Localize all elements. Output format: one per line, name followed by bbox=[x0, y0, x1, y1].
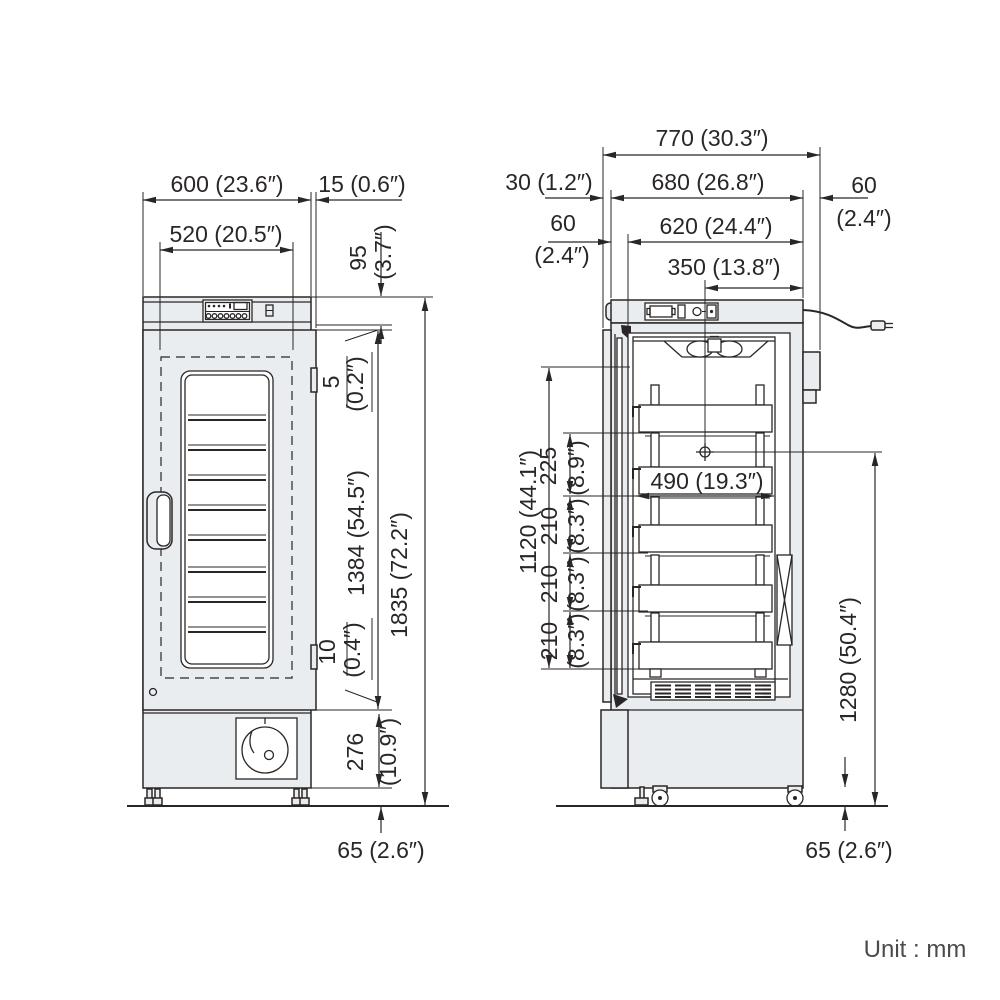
dim-label-pitch2-mm: 210 bbox=[536, 507, 562, 545]
dim-label-caster-height: 65 (2.6″) bbox=[805, 837, 892, 863]
dim-label-wall-mm: 60 bbox=[550, 210, 576, 236]
refrigerator-dimension-drawing: 600 (23.6″) 15 (0.6″) 520 (20.5″) 95 (3.… bbox=[0, 0, 1000, 1000]
rear-top-step bbox=[803, 390, 816, 403]
dim-label-bottom-gap-in: (0.4″) bbox=[339, 622, 365, 677]
glass-window bbox=[181, 371, 273, 668]
unit-note: Unit : mm bbox=[864, 936, 967, 963]
lower-front-panel bbox=[601, 710, 628, 788]
dim-label-top-gap-in: (0.2″) bbox=[342, 356, 368, 411]
dim-label-rear-clearance: 30 (1.2″) bbox=[505, 169, 592, 195]
rear-duct bbox=[777, 555, 792, 645]
dim-label-top-panel-in: (3.7″) bbox=[370, 224, 396, 279]
vent-grille bbox=[651, 682, 775, 700]
dim-label-pitch4-mm: 210 bbox=[536, 622, 562, 660]
chart-recorder bbox=[236, 718, 297, 779]
dim-label-pitch1-mm: 225 bbox=[535, 447, 561, 485]
dim-label-rear-offset-in: (2.4″) bbox=[836, 205, 891, 231]
hinge-top bbox=[311, 368, 317, 392]
indicator-led bbox=[218, 305, 221, 308]
dim-label-foot-height: 65 (2.6″) bbox=[337, 837, 424, 863]
dim-label-base-height-mm: 276 bbox=[342, 733, 368, 771]
rear-top-box bbox=[803, 352, 820, 390]
side-top-control-unit bbox=[645, 303, 718, 320]
indicator-led bbox=[213, 305, 216, 308]
casters bbox=[635, 786, 803, 806]
dim-label-door-overhang: 15 (0.6″) bbox=[318, 171, 405, 197]
front-view: 600 (23.6″) 15 (0.6″) 520 (20.5″) 95 (3.… bbox=[127, 171, 449, 863]
dim-label-pitch3-mm: 210 bbox=[536, 565, 562, 603]
dim-label-pitch3-in: (8.3″) bbox=[563, 556, 589, 611]
dim-label-door-height: 1384 (54.5″) bbox=[343, 470, 369, 596]
side-view: 770 (30.3″) 30 (1.2″) 680 (26.8″) 60 (2.… bbox=[505, 125, 893, 863]
dimension-drawing-page: 600 (23.6″) 15 (0.6″) 520 (20.5″) 95 (3.… bbox=[0, 0, 1000, 1000]
door-handle bbox=[147, 492, 172, 549]
dim-label-overall-height: 1835 (72.2″) bbox=[386, 512, 412, 638]
dim-label-top-panel-mm: 95 bbox=[345, 245, 371, 271]
dim-label-top-gap-mm: 5 bbox=[318, 376, 344, 389]
indicator-led bbox=[223, 305, 226, 308]
dim-label-base-height-in: (10.9″) bbox=[375, 718, 401, 786]
dim-label-pitch2-in: (8.3″) bbox=[563, 498, 589, 553]
side-door bbox=[603, 330, 611, 702]
leveling-feet bbox=[145, 789, 309, 805]
indicator-led bbox=[208, 305, 211, 308]
dim-label-rear-offset-mm: 60 bbox=[851, 172, 877, 198]
power-plug bbox=[871, 321, 885, 330]
dim-label-pitch1-in: (8.9″) bbox=[563, 440, 589, 495]
dim-label-basket-depth: 490 (19.3″) bbox=[651, 468, 764, 494]
dim-label-wall-in: (2.4″) bbox=[534, 242, 589, 268]
dim-label-overall-width: 600 (23.6″) bbox=[171, 171, 284, 197]
dim-label-overall-depth: 770 (30.3″) bbox=[656, 125, 769, 151]
power-cord bbox=[803, 310, 893, 330]
dim-label-bottom-gap-mm: 10 bbox=[314, 639, 340, 665]
dim-label-inner-depth: 620 (24.4″) bbox=[660, 213, 773, 239]
dim-label-anchor-depth: 350 (13.8″) bbox=[668, 254, 781, 280]
dim-label-inner-width: 520 (20.5″) bbox=[170, 221, 283, 247]
dim-label-body-depth: 680 (26.8″) bbox=[652, 169, 765, 195]
dim-label-anchor-height: 1280 (50.4″) bbox=[835, 597, 861, 723]
dim-label-pitch4-in: (8.3″) bbox=[563, 613, 589, 668]
